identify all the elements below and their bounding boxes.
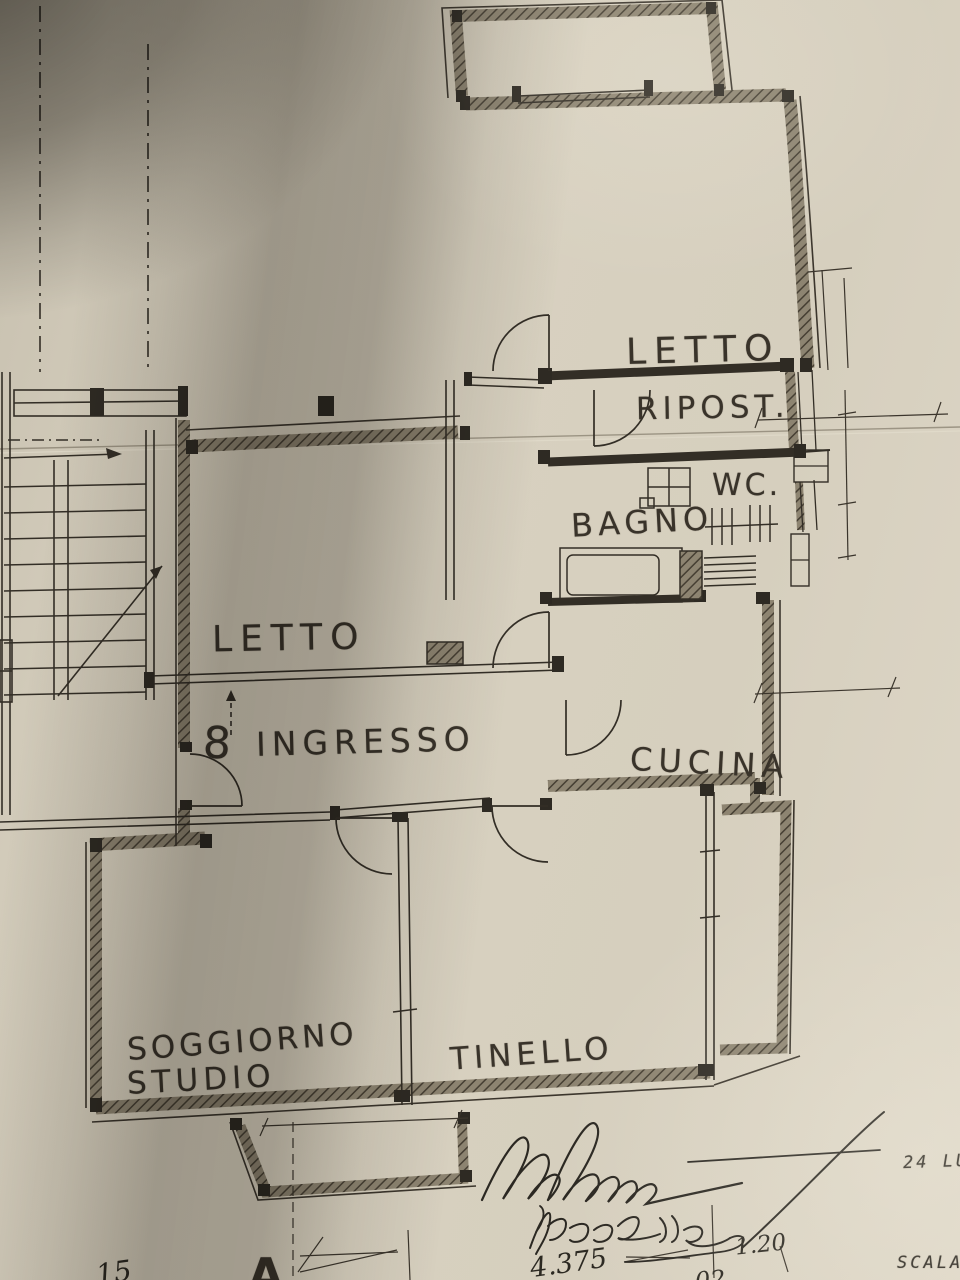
signature-handwriting	[482, 1112, 884, 1262]
stamp-date-partial: 24 LU	[903, 1151, 960, 1173]
room-label-ripostiglio: RIPOST.	[636, 389, 790, 428]
stairwell	[0, 6, 188, 815]
room-label-wc: WC.	[712, 468, 781, 503]
room-label-letto-left: LETTO	[212, 617, 367, 661]
section-letter: A	[248, 1248, 284, 1280]
floorplan-photo: LETTO RIPOST. WC. BAGNO LETTO 8 INGRESSO…	[0, 0, 960, 1280]
stamp-scale-partial: SCALA	[897, 1253, 960, 1273]
handwritten-dimension-partial-left: 15	[94, 1254, 134, 1280]
handwritten-dimension-small: 1.20	[734, 1229, 788, 1260]
dimension-lines	[260, 268, 948, 1280]
handwritten-dimension-partial-bottom: 02	[694, 1265, 727, 1280]
room-label-letto-top: LETTO	[625, 328, 781, 373]
wall-outlines	[86, 0, 820, 1200]
unit-number: 8	[202, 717, 233, 769]
wall-junctions	[90, 2, 812, 1196]
room-label-ingresso: INGRESSO	[256, 719, 477, 764]
room-label-bagno: BAGNO	[570, 499, 714, 544]
